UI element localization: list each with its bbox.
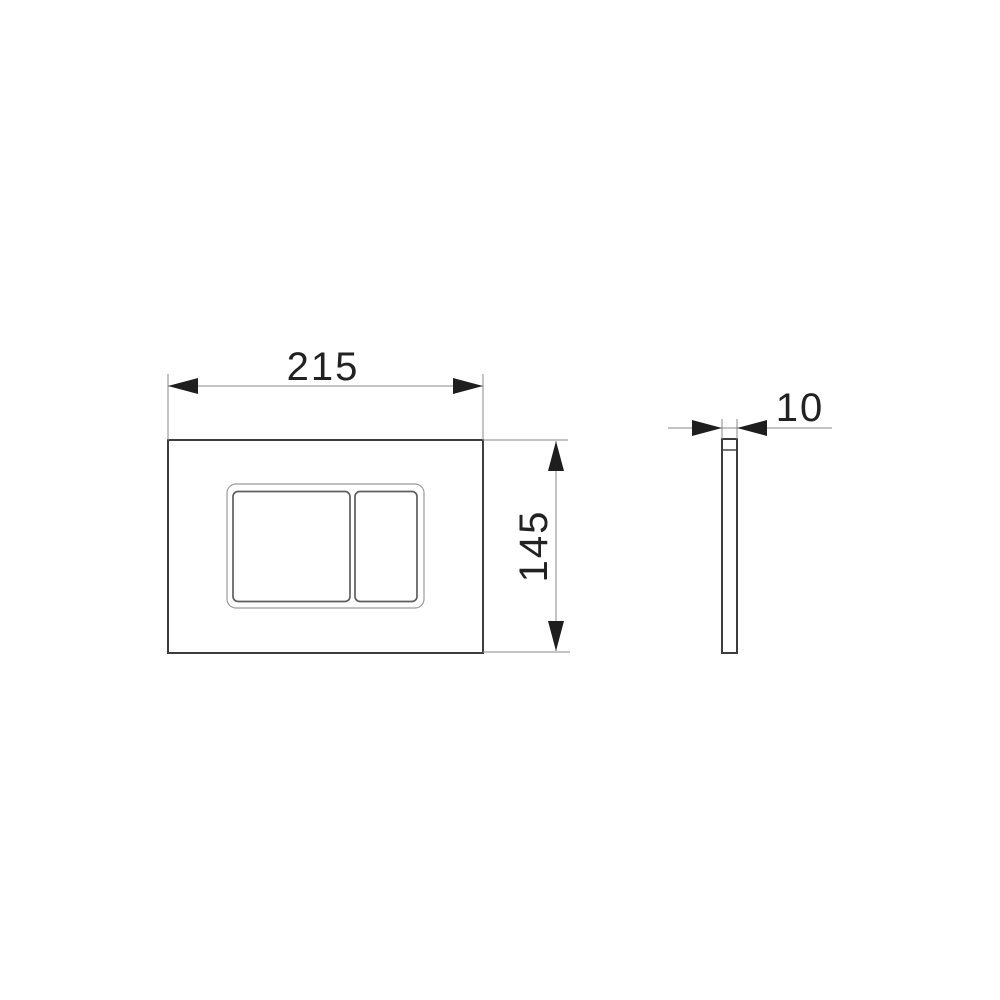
height-dimension-label: 145: [512, 510, 556, 583]
plate-front-outline: [168, 440, 483, 653]
front-view: [168, 440, 483, 653]
drawing-page: 215 145 10: [0, 0, 1000, 1000]
drawing-canvas: 215 145 10: [0, 0, 1000, 1000]
width-dimension: 215: [168, 345, 483, 440]
side-view: [722, 439, 737, 653]
height-arrow-down-icon: [548, 621, 564, 651]
depth-dimension-label: 10: [776, 386, 825, 430]
plate-side-profile: [722, 439, 737, 653]
width-arrow-right-icon: [453, 378, 483, 394]
depth-arrow-right-icon: [692, 420, 722, 436]
small-flush-button: [355, 492, 417, 602]
large-flush-button: [233, 492, 350, 602]
height-arrow-up-icon: [548, 441, 564, 471]
button-recess-frame: [227, 484, 424, 608]
width-dimension-label: 215: [287, 345, 360, 389]
depth-arrow-left-icon: [737, 420, 767, 436]
width-arrow-left-icon: [168, 378, 198, 394]
height-dimension: 145: [483, 440, 570, 652]
depth-dimension: 10: [668, 386, 832, 439]
